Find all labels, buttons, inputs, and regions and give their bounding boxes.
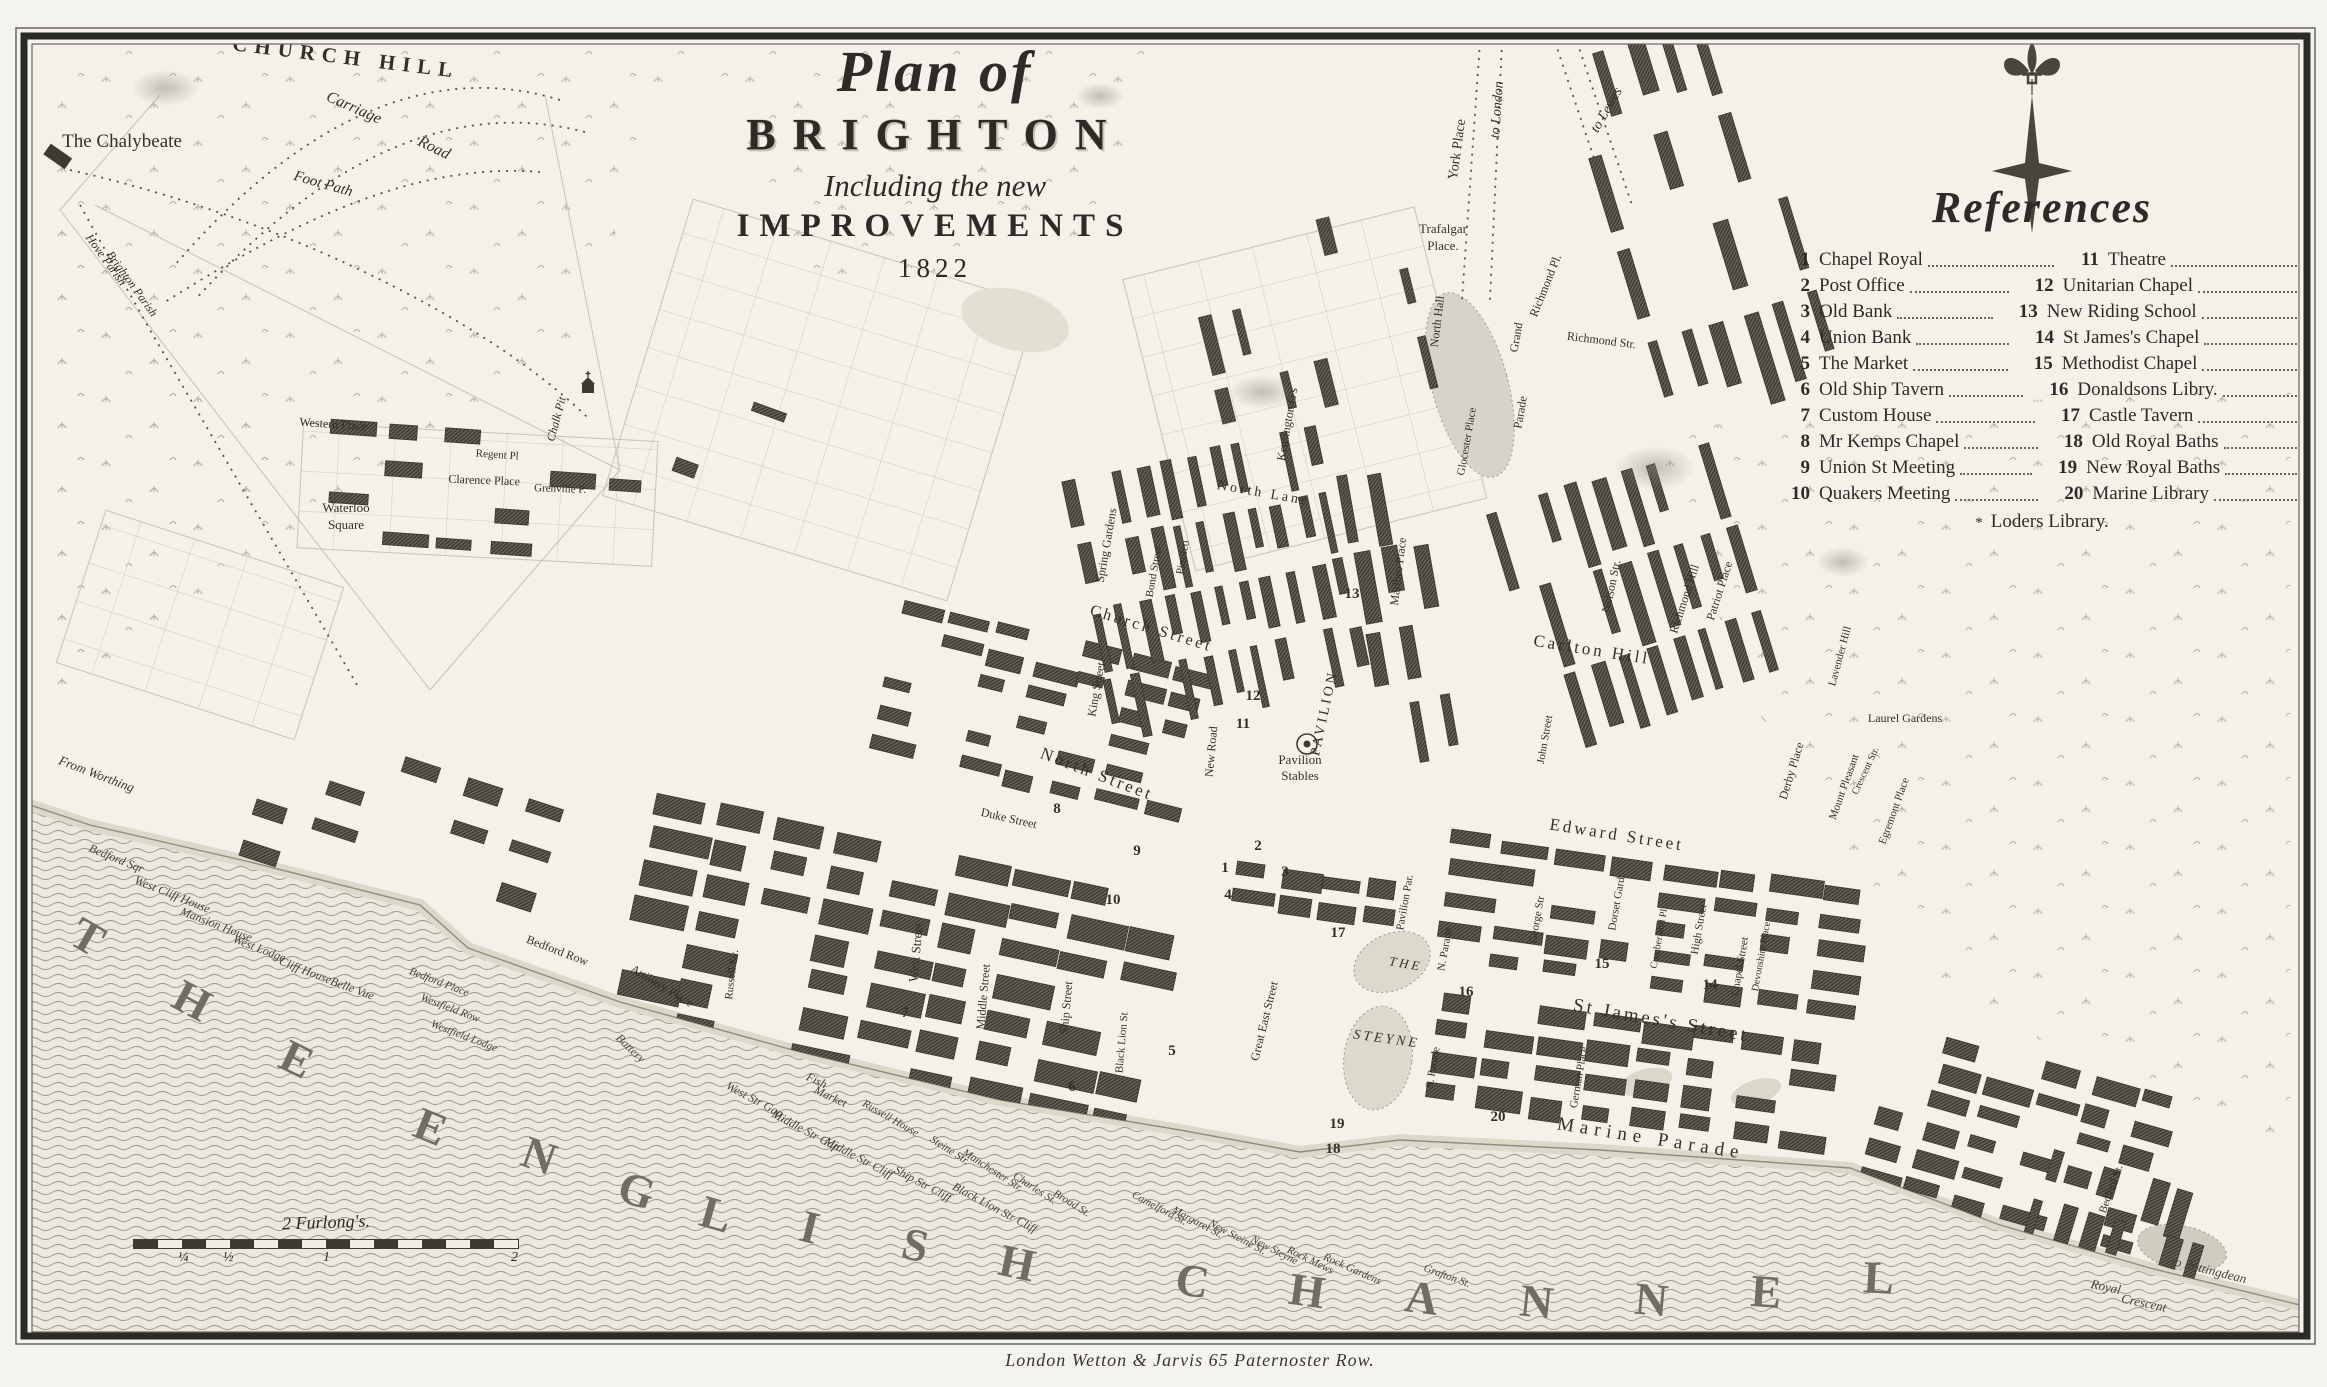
ref-number-marker: 10 — [1106, 892, 1121, 908]
ref-number-marker: 2 — [1254, 838, 1262, 854]
imprint-text: London Wetton & Jarvis 65 Paternoster Ro… — [840, 1350, 1540, 1371]
map-label: Grenville P. — [534, 482, 587, 496]
ref-number-marker: 19 — [1330, 1116, 1345, 1132]
map-label: A — [1402, 1270, 1441, 1325]
ref-number-marker: 9 — [1133, 843, 1141, 859]
map-label: Stables — [1281, 768, 1319, 783]
map-label: The Chalybeate — [62, 131, 182, 152]
map-label: Waterloo — [322, 500, 369, 515]
ref-number-marker: 20 — [1491, 1109, 1506, 1125]
ref-number-marker: 18 — [1326, 1141, 1341, 1157]
map-label: L — [1862, 1251, 1895, 1304]
map-label: Clarence Place — [448, 472, 520, 488]
ref-number-marker: 12 — [1246, 688, 1261, 704]
map-label: Trafalgar — [1419, 221, 1468, 236]
ref-number-marker: 16 — [1459, 984, 1475, 1000]
ref-number-marker: 17 — [1331, 925, 1347, 941]
map-sheet: CHURCH HILLCarriageRoadFoot PathThe Chal… — [0, 0, 2327, 1387]
map-label: N — [1633, 1273, 1671, 1327]
map-label: Square — [328, 517, 364, 532]
map-canvas: CHURCH HILLCarriageRoadFoot PathThe Chal… — [0, 0, 2327, 1387]
ref-number-marker: 4 — [1224, 887, 1232, 903]
ref-number-marker: 1 — [1221, 860, 1229, 876]
map-label: Laurel Gardens — [1868, 711, 1943, 725]
ref-number-marker: 14 — [1703, 977, 1719, 993]
map-label: E — [1749, 1265, 1783, 1318]
ref-number-marker: 13 — [1345, 586, 1360, 602]
ref-number-marker: 5 — [1168, 1043, 1176, 1059]
ref-number-marker: 15 — [1595, 956, 1610, 972]
map-label: Place. — [1427, 238, 1458, 253]
ref-number-marker: 11 — [1236, 716, 1250, 732]
ref-number-marker: 7 — [901, 1005, 909, 1021]
ref-number-marker: 8 — [1053, 801, 1061, 817]
map-label: H — [1286, 1263, 1329, 1319]
ref-number-marker: 3 — [1281, 864, 1289, 880]
ref-number-marker: 6 — [1068, 1079, 1076, 1095]
map-label: N — [1517, 1274, 1555, 1328]
